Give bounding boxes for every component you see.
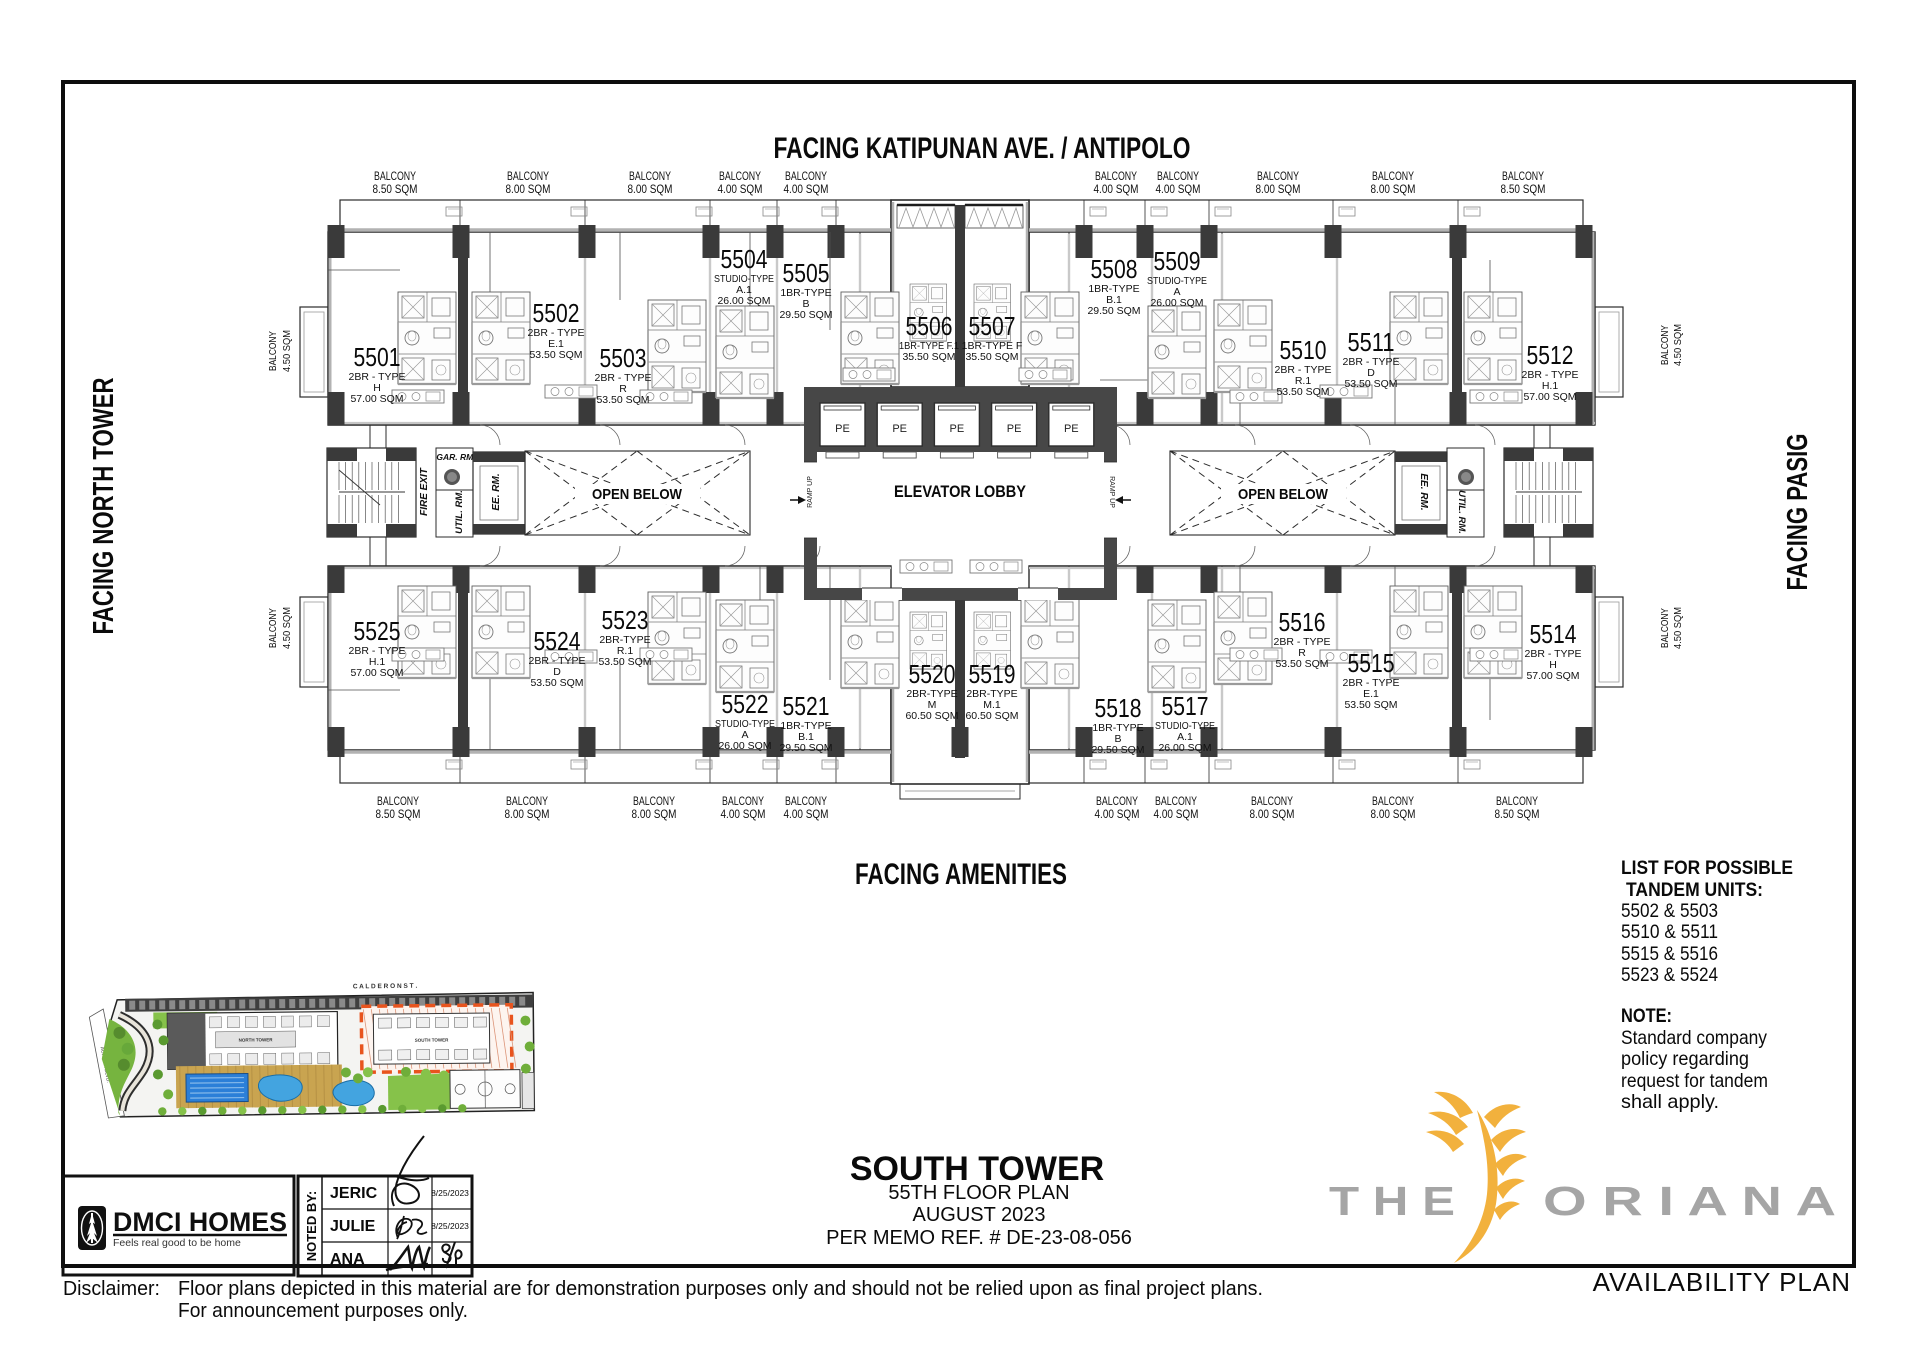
svg-text:FACING KATIPUNAN AVE. / ANTIPO: FACING KATIPUNAN AVE. / ANTIPOLO	[774, 132, 1191, 165]
svg-text:53.50 SQM: 53.50 SQM	[1344, 699, 1397, 711]
svg-text:SOUTH TOWER: SOUTH TOWER	[415, 1037, 449, 1042]
svg-text:8/25/2023: 8/25/2023	[431, 1221, 469, 1231]
svg-text:4.00 SQM: 4.00 SQM	[1154, 809, 1199, 821]
svg-text:53.50 SQM: 53.50 SQM	[598, 656, 651, 668]
svg-text:BALCONY: BALCONY	[785, 171, 827, 183]
svg-text:5503: 5503	[600, 343, 647, 373]
svg-text:BALCONY: BALCONY	[1251, 796, 1293, 808]
svg-text:57.00 SQM: 57.00 SQM	[1523, 391, 1576, 403]
svg-text:5523 & 5524: 5523 & 5524	[1621, 964, 1718, 986]
svg-text:26.00 SQM: 26.00 SQM	[718, 740, 771, 752]
svg-text:NORTH TOWER: NORTH TOWER	[239, 1037, 274, 1042]
svg-text:4.00 SQM: 4.00 SQM	[1095, 809, 1140, 821]
svg-text:4.50 SQM: 4.50 SQM	[1672, 607, 1684, 649]
svg-text:BALCONY: BALCONY	[1372, 796, 1414, 808]
svg-text:NOTED BY:: NOTED BY:	[304, 1191, 319, 1262]
svg-text:8.00 SQM: 8.00 SQM	[1371, 809, 1416, 821]
svg-text:8.00 SQM: 8.00 SQM	[628, 184, 673, 196]
svg-text:BALCONY: BALCONY	[1372, 171, 1414, 183]
svg-text:5504: 5504	[721, 244, 768, 274]
svg-text:8.00 SQM: 8.00 SQM	[1371, 184, 1416, 196]
svg-text:5502: 5502	[533, 298, 580, 328]
svg-text:5517: 5517	[1162, 691, 1209, 721]
svg-text:BALCONY: BALCONY	[719, 171, 761, 183]
svg-text:55TH FLOOR PLAN: 55TH FLOOR PLAN	[888, 1182, 1069, 1204]
svg-text:PE: PE	[1064, 423, 1079, 435]
svg-text:5507: 5507	[969, 311, 1016, 341]
svg-text:4.00 SQM: 4.00 SQM	[784, 809, 829, 821]
svg-text:FIRE EXIT: FIRE EXIT	[419, 467, 430, 516]
svg-text:53.50 SQM: 53.50 SQM	[530, 677, 583, 689]
svg-text:8.00 SQM: 8.00 SQM	[506, 184, 551, 196]
svg-text:request for tandem: request for tandem	[1621, 1070, 1768, 1092]
svg-text:BALCONY: BALCONY	[377, 796, 419, 808]
svg-text:AUGUST 2023: AUGUST 2023	[912, 1204, 1045, 1226]
svg-text:5514: 5514	[1530, 619, 1577, 649]
svg-text:BALCONY: BALCONY	[506, 796, 548, 808]
svg-text:UTIL. RM.: UTIL. RM.	[1456, 490, 1467, 534]
svg-text:5516: 5516	[1279, 607, 1326, 637]
svg-text:29.50 SQM: 29.50 SQM	[779, 309, 832, 321]
svg-text:53.50 SQM: 53.50 SQM	[1344, 378, 1397, 390]
svg-text:JULIE: JULIE	[330, 1218, 376, 1235]
svg-text:DMCI HOMES: DMCI HOMES	[113, 1207, 287, 1237]
svg-text:8.00 SQM: 8.00 SQM	[505, 809, 550, 821]
svg-text:Floor plans depicted in this m: Floor plans depicted in this material ar…	[178, 1277, 1263, 1300]
svg-text:4.00 SQM: 4.00 SQM	[718, 184, 763, 196]
svg-text:35.50 SQM: 35.50 SQM	[902, 351, 955, 363]
svg-text:RAMP UP: RAMP UP	[1108, 476, 1115, 508]
svg-text:5502 & 5503: 5502 & 5503	[1621, 900, 1718, 922]
svg-text:5523: 5523	[602, 605, 649, 635]
svg-text:FACING PASIG: FACING PASIG	[1782, 434, 1814, 591]
svg-text:8.00 SQM: 8.00 SQM	[632, 809, 677, 821]
svg-text:4.00 SQM: 4.00 SQM	[1156, 184, 1201, 196]
svg-text:26.00 SQM: 26.00 SQM	[1158, 742, 1211, 754]
svg-text:Feels real good to be home: Feels real good to be home	[113, 1237, 241, 1249]
svg-text:57.00 SQM: 57.00 SQM	[1526, 670, 1579, 682]
svg-text:5524: 5524	[534, 626, 581, 656]
svg-text:BALCONY: BALCONY	[633, 796, 675, 808]
svg-text:8.50 SQM: 8.50 SQM	[1495, 809, 1540, 821]
svg-text:BALCONY: BALCONY	[1502, 171, 1544, 183]
svg-text:BALCONY: BALCONY	[267, 331, 279, 371]
svg-text:ELEVATOR LOBBY: ELEVATOR LOBBY	[894, 483, 1026, 501]
svg-text:26.00 SQM: 26.00 SQM	[1150, 297, 1203, 309]
svg-text:29.50 SQM: 29.50 SQM	[1091, 744, 1144, 756]
svg-text:8/25/2023: 8/25/2023	[431, 1188, 469, 1198]
svg-text:RAMP UP: RAMP UP	[807, 476, 814, 508]
svg-text:5509: 5509	[1154, 246, 1201, 276]
svg-text:8.50 SQM: 8.50 SQM	[373, 184, 418, 196]
svg-text:4.50 SQM: 4.50 SQM	[281, 330, 293, 372]
svg-text:BALCONY: BALCONY	[267, 608, 279, 648]
svg-text:AVAILABILITY PLAN: AVAILABILITY PLAN	[1593, 1267, 1851, 1297]
svg-text:PE: PE	[950, 423, 965, 435]
svg-text:5518: 5518	[1095, 693, 1142, 723]
svg-text:ANA: ANA	[330, 1251, 365, 1268]
svg-text:Disclaimer:: Disclaimer:	[63, 1277, 160, 1300]
svg-text:60.50 SQM: 60.50 SQM	[905, 710, 958, 722]
svg-text:For announcement purposes only: For announcement purposes only.	[178, 1299, 468, 1322]
svg-text:4.00 SQM: 4.00 SQM	[1094, 184, 1139, 196]
svg-text:BALCONY: BALCONY	[1496, 796, 1538, 808]
svg-text:5525: 5525	[354, 616, 401, 646]
svg-text:5510 & 5511: 5510 & 5511	[1621, 921, 1718, 943]
svg-text:60.50 SQM: 60.50 SQM	[965, 710, 1018, 722]
svg-text:8.00 SQM: 8.00 SQM	[1250, 809, 1295, 821]
svg-text:5505: 5505	[783, 258, 830, 288]
svg-text:EE. RM.: EE. RM.	[1418, 473, 1429, 510]
svg-text:NOTE:: NOTE:	[1621, 1005, 1672, 1027]
svg-text:BALCONY: BALCONY	[1155, 796, 1197, 808]
svg-text:53.50 SQM: 53.50 SQM	[1276, 386, 1329, 398]
svg-text:shall apply.: shall apply.	[1621, 1091, 1719, 1113]
svg-text:53.50 SQM: 53.50 SQM	[529, 349, 582, 361]
svg-text:BALCONY: BALCONY	[1659, 325, 1671, 365]
svg-text:5522: 5522	[722, 689, 769, 719]
svg-text:57.00 SQM: 57.00 SQM	[350, 667, 403, 679]
svg-text:OPEN BELOW: OPEN BELOW	[1238, 486, 1329, 503]
svg-text:GAR. RM.: GAR. RM.	[436, 452, 475, 462]
svg-text:57.00 SQM: 57.00 SQM	[350, 393, 403, 405]
svg-text:BALCONY: BALCONY	[507, 171, 549, 183]
svg-text:4.00 SQM: 4.00 SQM	[721, 809, 766, 821]
svg-text:5508: 5508	[1091, 254, 1138, 284]
svg-text:BALCONY: BALCONY	[374, 171, 416, 183]
svg-text:PE: PE	[1007, 423, 1022, 435]
svg-text:FACING NORTH TOWER: FACING NORTH TOWER	[88, 377, 120, 634]
svg-text:BALCONY: BALCONY	[785, 796, 827, 808]
svg-text:BALCONY: BALCONY	[1095, 171, 1137, 183]
svg-text:26.00 SQM: 26.00 SQM	[717, 295, 770, 307]
svg-text:policy regarding: policy regarding	[1621, 1048, 1749, 1070]
svg-text:TANDEM UNITS:: TANDEM UNITS:	[1626, 879, 1763, 901]
svg-text:4.50 SQM: 4.50 SQM	[1672, 324, 1684, 366]
svg-text:EE. RM.: EE. RM.	[491, 473, 502, 510]
svg-text:5515: 5515	[1348, 648, 1395, 678]
svg-text:5519: 5519	[969, 659, 1016, 689]
svg-text:C A L D E R O N S T .: C A L D E R O N S T .	[353, 983, 418, 991]
svg-text:UTIL. RM.: UTIL. RM.	[454, 490, 465, 534]
svg-text:5511: 5511	[1348, 327, 1395, 357]
svg-text:BALCONY: BALCONY	[629, 171, 671, 183]
svg-text:5501: 5501	[354, 342, 401, 372]
svg-text:LIST FOR POSSIBLE: LIST FOR POSSIBLE	[1621, 857, 1793, 879]
svg-text:5515 & 5516: 5515 & 5516	[1621, 943, 1718, 965]
svg-text:BALCONY: BALCONY	[1257, 171, 1299, 183]
svg-text:PE: PE	[892, 423, 907, 435]
svg-text:FACING AMENITIES: FACING AMENITIES	[855, 858, 1067, 891]
svg-text:53.50 SQM: 53.50 SQM	[1275, 658, 1328, 670]
svg-text:BALCONY: BALCONY	[722, 796, 764, 808]
svg-text:35.50 SQM: 35.50 SQM	[965, 351, 1018, 363]
svg-text:5506: 5506	[906, 311, 953, 341]
svg-text:8.50 SQM: 8.50 SQM	[1501, 184, 1546, 196]
svg-text:T H E: T H E	[1329, 1178, 1455, 1224]
svg-text:JERIC: JERIC	[330, 1185, 378, 1202]
svg-text:29.50 SQM: 29.50 SQM	[779, 742, 832, 754]
svg-text:Standard company: Standard company	[1621, 1027, 1767, 1049]
svg-text:BALCONY: BALCONY	[1096, 796, 1138, 808]
svg-text:OPEN BELOW: OPEN BELOW	[592, 486, 683, 503]
svg-text:8.00 SQM: 8.00 SQM	[1256, 184, 1301, 196]
svg-text:29.50 SQM: 29.50 SQM	[1087, 305, 1140, 317]
svg-text:5510: 5510	[1280, 335, 1327, 365]
svg-text:BALCONY: BALCONY	[1659, 608, 1671, 648]
svg-text:PE: PE	[835, 423, 850, 435]
svg-text:4.00 SQM: 4.00 SQM	[784, 184, 829, 196]
svg-text:5521: 5521	[783, 691, 830, 721]
svg-text:4.50 SQM: 4.50 SQM	[281, 607, 293, 649]
svg-text:5512: 5512	[1527, 340, 1574, 370]
svg-text:8.50 SQM: 8.50 SQM	[376, 809, 421, 821]
svg-text:O R I A N A: O R I A N A	[1543, 1178, 1836, 1224]
svg-text:BALCONY: BALCONY	[1157, 171, 1199, 183]
svg-text:5520: 5520	[909, 659, 956, 689]
svg-text:PER MEMO REF. # DE-23-08-056: PER MEMO REF. # DE-23-08-056	[826, 1227, 1132, 1249]
svg-text:53.50 SQM: 53.50 SQM	[596, 394, 649, 406]
